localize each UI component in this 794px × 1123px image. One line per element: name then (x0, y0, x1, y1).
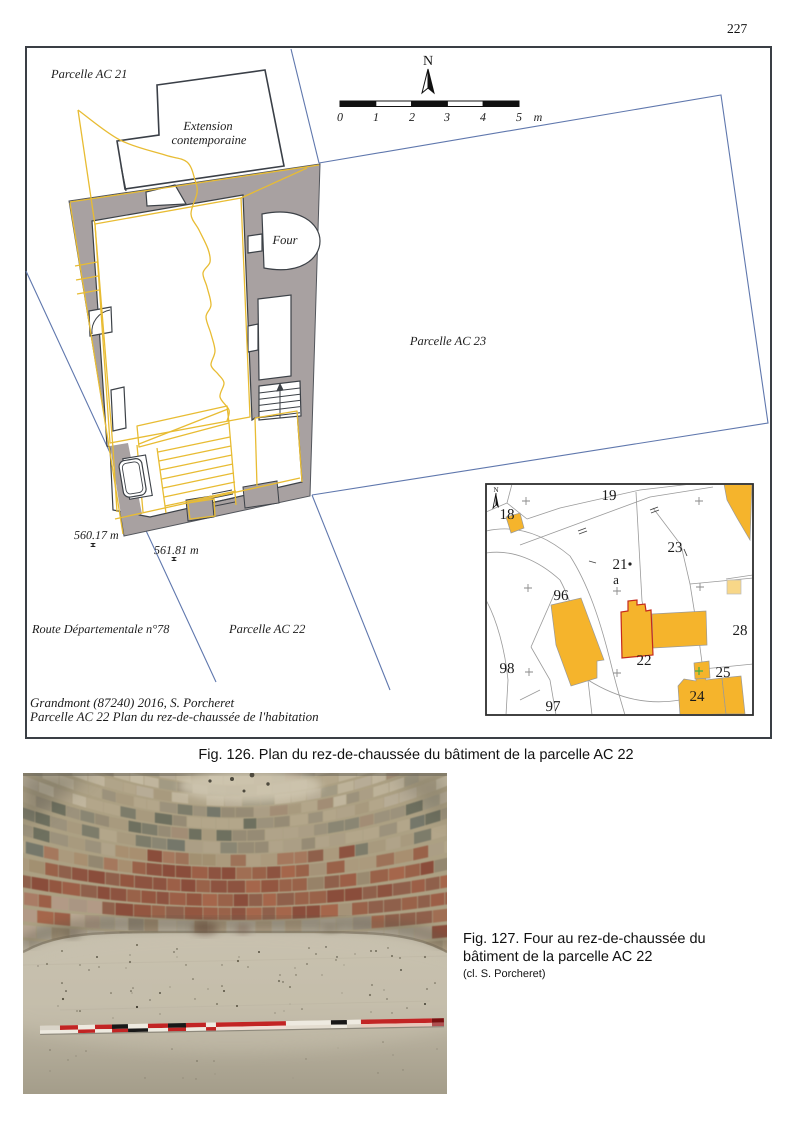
svg-text:1: 1 (373, 110, 379, 124)
svg-text:Extension: Extension (182, 119, 232, 133)
svg-text:19: 19 (602, 488, 617, 504)
svg-text:(cl. S. Porcheret): (cl. S. Porcheret) (463, 968, 546, 980)
svg-text:4: 4 (480, 110, 486, 124)
svg-text:98: 98 (500, 661, 515, 677)
svg-text:97: 97 (546, 699, 562, 715)
svg-text:Parcelle AC 21: Parcelle AC 21 (50, 67, 127, 81)
svg-text:N: N (423, 54, 433, 69)
svg-text:5: 5 (516, 110, 522, 124)
svg-text:Four: Four (272, 233, 298, 247)
svg-text:contemporaine: contemporaine (172, 133, 247, 147)
svg-text:561.81 m: 561.81 m (154, 543, 199, 557)
svg-text:96: 96 (554, 588, 570, 604)
svg-text:25: 25 (716, 665, 731, 681)
svg-text:Fig. 127. Four au rez-de-chaus: Fig. 127. Four au rez-de-chaussée du (463, 931, 706, 947)
svg-text:N: N (493, 486, 498, 494)
svg-text:560.17 m: 560.17 m (74, 528, 119, 542)
svg-text:22: 22 (637, 653, 652, 669)
svg-text:0: 0 (337, 110, 343, 124)
svg-text:Parcelle AC 22 Plan du rez-de-: Parcelle AC 22 Plan du rez-de-chaussée d… (29, 709, 319, 724)
svg-text:Route Départementale n°78: Route Départementale n°78 (31, 622, 170, 636)
svg-text:24: 24 (690, 689, 706, 705)
svg-text:227: 227 (727, 21, 748, 36)
svg-text:28: 28 (733, 623, 748, 639)
svg-text:3: 3 (443, 110, 450, 124)
svg-text:Parcelle AC 22: Parcelle AC 22 (228, 622, 305, 636)
svg-text:21: 21 (613, 557, 628, 573)
svg-text:Parcelle AC 23: Parcelle AC 23 (409, 334, 486, 348)
svg-text:bâtiment de la parcelle AC 22: bâtiment de la parcelle AC 22 (463, 949, 652, 965)
svg-text:a: a (613, 572, 619, 587)
svg-text:2: 2 (409, 110, 415, 124)
svg-text:m: m (534, 110, 543, 124)
svg-text:23: 23 (668, 540, 683, 556)
svg-text:Grandmont (87240) 2016, S. Por: Grandmont (87240) 2016, S. Porcheret (30, 695, 235, 710)
svg-text:Fig. 126. Plan du rez-de-chaus: Fig. 126. Plan du rez-de-chaussée du bât… (198, 747, 633, 763)
svg-text:18: 18 (500, 507, 515, 523)
